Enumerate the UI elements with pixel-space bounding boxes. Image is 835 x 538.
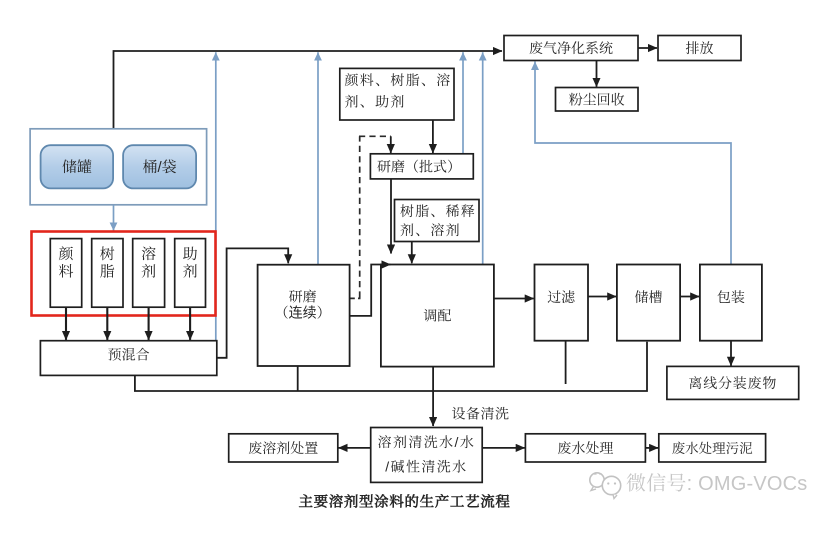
svg-text:研磨（批式）: 研磨（批式） [377,158,461,174]
svg-text:助: 助 [183,246,198,263]
svg-text:剂、助剂: 剂、助剂 [345,94,406,110]
svg-text:颜料、树脂、溶: 颜料、树脂、溶 [345,72,452,88]
svg-text:调配: 调配 [423,308,451,324]
svg-text:废溶剂处置: 废溶剂处置 [248,440,318,456]
svg-text:储罐: 储罐 [62,159,92,176]
svg-text:桶/袋: 桶/袋 [143,159,177,176]
svg-text:废水处理: 废水处理 [557,440,613,456]
svg-text:溶剂清洗水/水: 溶剂清洗水/水 [378,434,476,450]
svg-text:离线分装废物: 离线分装废物 [688,375,777,391]
svg-text:剂: 剂 [183,264,198,281]
svg-text:废水处理污泥: 废水处理污泥 [672,441,753,456]
svg-text:废气净化系统: 废气净化系统 [529,40,613,56]
svg-text:剂: 剂 [141,264,156,281]
svg-text:树脂、稀释: 树脂、稀释 [400,203,476,219]
svg-text:树: 树 [100,246,115,263]
svg-text:过滤: 过滤 [547,289,576,305]
svg-text:包装: 包装 [717,289,745,305]
svg-text:微信号: OMG-VOCs: 微信号: OMG-VOCs [626,473,808,495]
svg-text:排放: 排放 [686,40,714,56]
svg-text:设备清洗: 设备清洗 [452,406,510,422]
svg-text:/碱性清洗水: /碱性清洗水 [385,459,467,475]
svg-text:脂: 脂 [100,264,115,281]
svg-text:研磨: 研磨 [289,289,317,305]
svg-text:预混合: 预混合 [108,346,150,362]
svg-text:颜: 颜 [58,246,74,263]
svg-text:料: 料 [58,264,73,281]
svg-text:粉尘回收: 粉尘回收 [569,91,625,107]
svg-text:（连续）: （连续） [275,305,331,321]
svg-text:剂、溶剂: 剂、溶剂 [400,222,461,238]
svg-text:储槽: 储槽 [635,289,663,305]
svg-text:主要溶剂型涂料的生产工艺流程: 主要溶剂型涂料的生产工艺流程 [298,494,510,511]
svg-text:溶: 溶 [141,246,156,263]
